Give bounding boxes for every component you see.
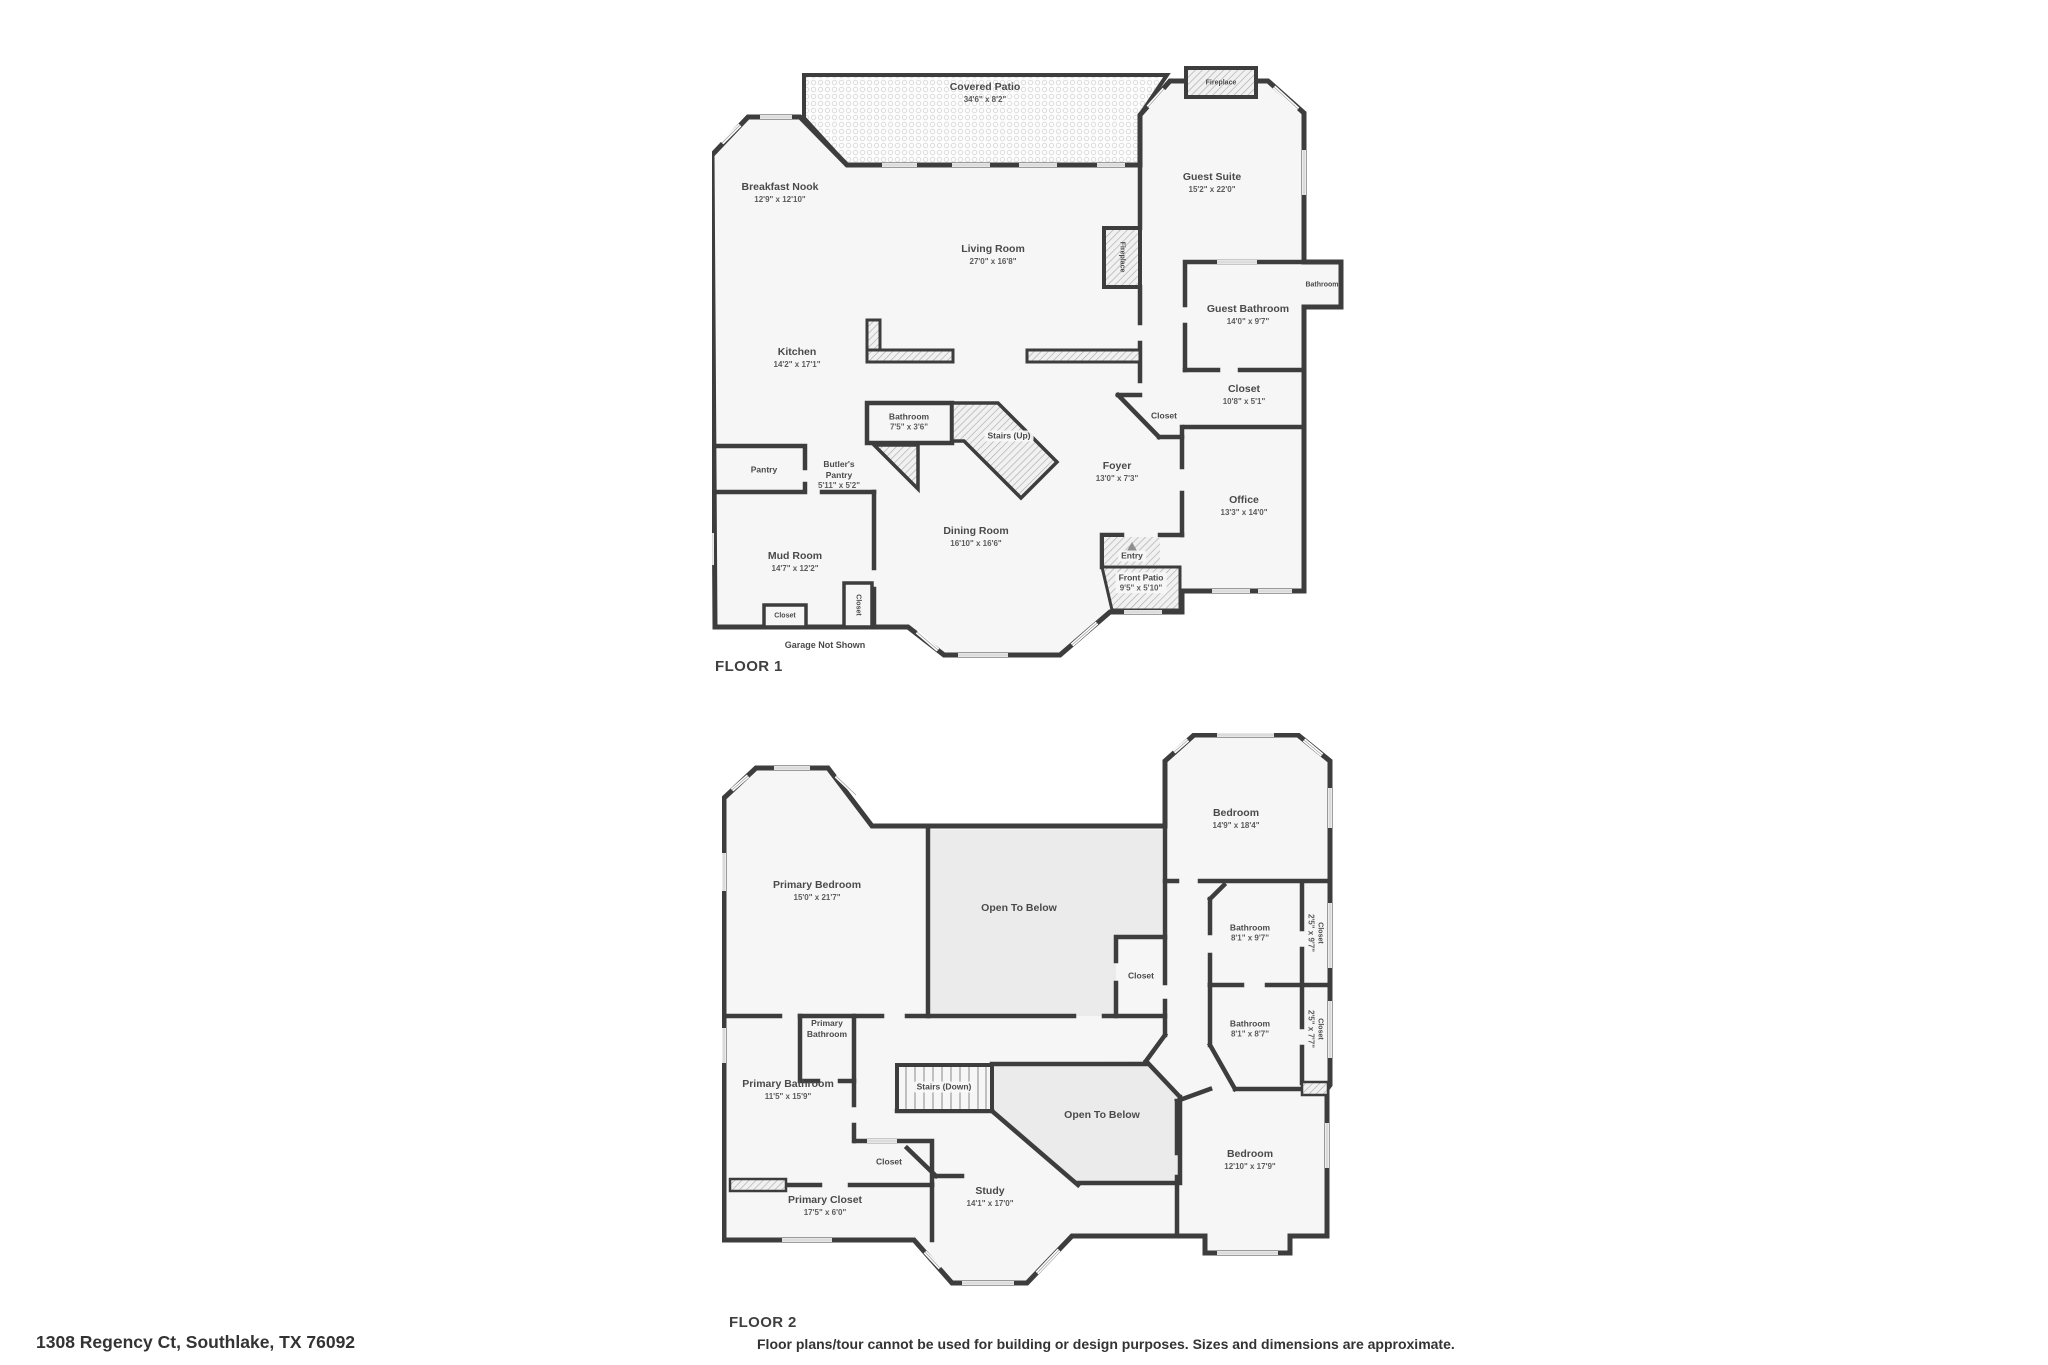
fireplace-top-box: [1186, 68, 1256, 97]
property-address: 1308 Regency Ct, Southlake, TX 76092: [36, 1332, 355, 1353]
fireplace-living-box: [1104, 228, 1140, 287]
floor2-plan: Primary Bedroom 15'0" x 21'7" Open To Be…: [722, 733, 1372, 1345]
stairs-down-area: [897, 1065, 992, 1111]
closet-mud-h-box: [764, 605, 806, 627]
floorplan-disclaimer: Floor plans/tour cannot be used for buil…: [757, 1336, 1455, 1352]
primary-closet-hatch-wall: [730, 1179, 786, 1191]
floor1-title: FLOOR 1: [715, 658, 783, 675]
garage-note: Garage Not Shown: [785, 640, 866, 650]
floor2-title: FLOOR 2: [729, 1314, 797, 1331]
floor1-plan: Covered Patio 34'6" x 8'2" Fireplace Bre…: [712, 65, 1367, 665]
covered-patio-area: [804, 75, 1167, 165]
closet-mud-v-box: [844, 583, 872, 627]
front-patio-area: [1102, 567, 1180, 610]
floor2-drawing: [722, 733, 1372, 1345]
floor1-drawing: [712, 65, 1367, 665]
closet-wing-hatch-wall: [1302, 1082, 1328, 1095]
